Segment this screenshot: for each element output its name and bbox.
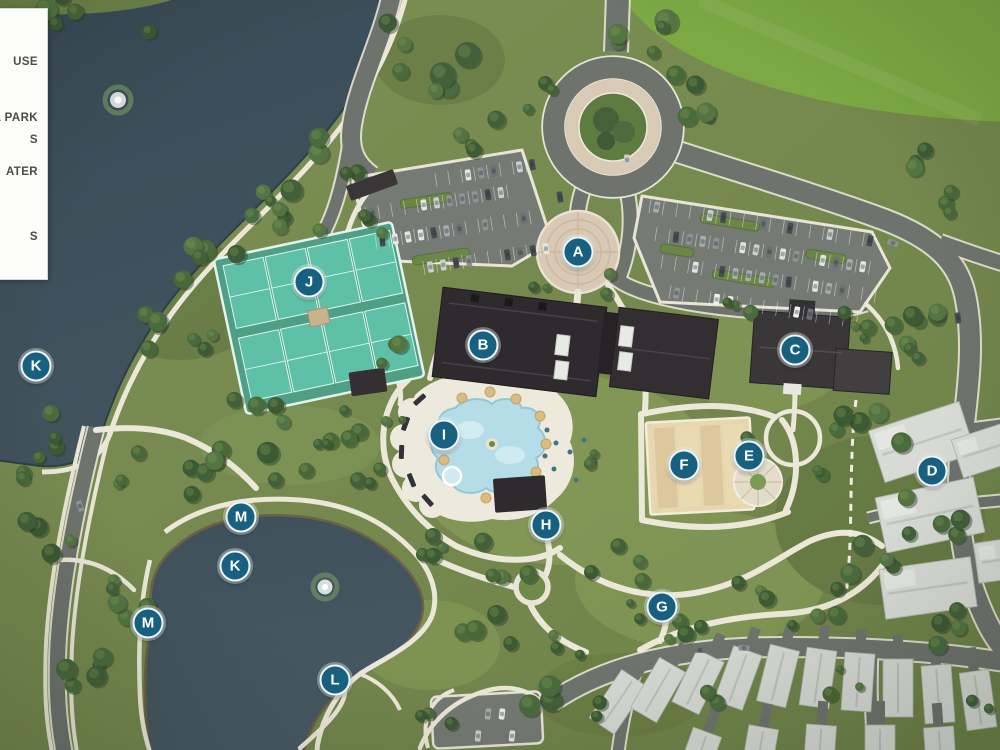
map-marker-e[interactable]: E — [734, 441, 765, 472]
pool-pavilion — [493, 475, 547, 513]
legend-entry: ATER — [6, 166, 38, 178]
legend-entry: S — [30, 231, 38, 243]
map-marker-k[interactable]: K — [220, 551, 251, 582]
map-marker-c[interactable]: C — [780, 335, 811, 366]
legend-entry: S — [30, 134, 38, 146]
map-marker-j[interactable]: J — [294, 267, 325, 298]
map-marker-l[interactable]: L — [320, 665, 351, 696]
map-marker-i[interactable]: I — [429, 420, 460, 451]
spa — [443, 467, 461, 485]
map-marker-b[interactable]: B — [468, 330, 499, 361]
tennis-building — [349, 368, 388, 397]
map-marker-m[interactable]: M — [133, 608, 164, 639]
map-marker-g[interactable]: G — [647, 592, 678, 623]
court-pavilion — [307, 307, 330, 327]
legend-entry: AL PARK — [0, 112, 38, 124]
clubhouse-annex — [596, 306, 719, 399]
map-marker-h[interactable]: H — [531, 510, 562, 541]
roundabout — [543, 57, 684, 198]
map-marker-m[interactable]: M — [226, 502, 257, 533]
map-marker-d[interactable]: D — [917, 456, 948, 487]
map-marker-f[interactable]: F — [669, 450, 700, 481]
site-plan-map: USEAL PARKSATERS ABCDEFGHIJKKLMM — [0, 0, 1000, 750]
legend-panel: USEAL PARKSATERS — [0, 8, 48, 280]
map-marker-k[interactable]: K — [21, 351, 52, 382]
legend-entry: USE — [13, 56, 38, 68]
map-marker-a[interactable]: A — [563, 237, 594, 268]
